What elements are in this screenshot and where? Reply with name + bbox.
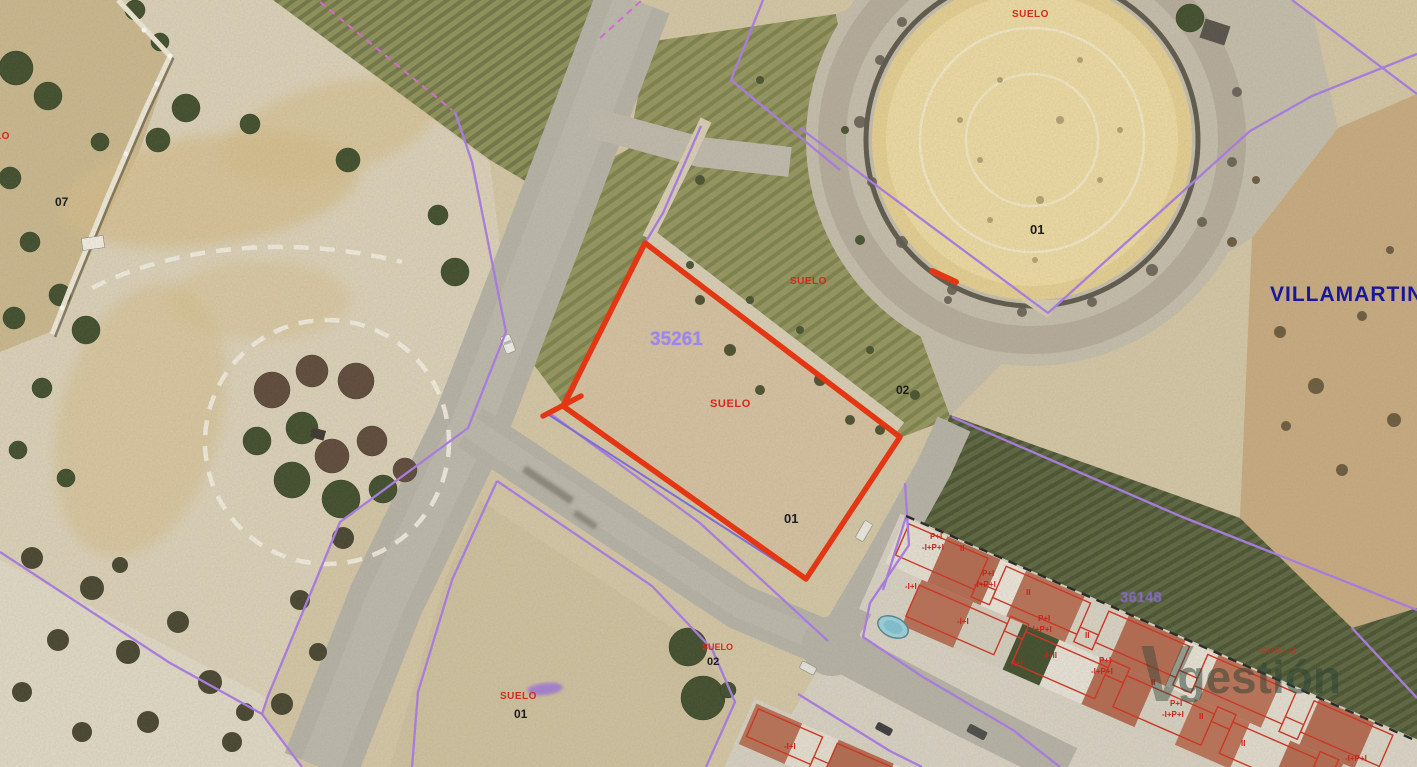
map-canvas[interactable]: SUELO 07 SUELO 01 SUELO 35261 SUELO 02 0… [0, 0, 1417, 767]
floors-label: II [1026, 589, 1030, 597]
subparcel-number: 02 [896, 384, 909, 396]
subparcel-number: 02 [707, 657, 719, 668]
floors-label: -I+II [1043, 652, 1057, 660]
selected-parcel-ref: 35261 [650, 330, 703, 349]
floors-label: -I+P+I [974, 581, 996, 589]
floors-label: II [960, 545, 964, 553]
land-use-label: SUELO [500, 692, 537, 702]
floors-label: -I+P+I [1030, 626, 1052, 634]
floors-label: -I+P+I [922, 544, 944, 552]
land-use-label: SUELO [710, 399, 751, 410]
nearby-parcel-ref: 36148 [1120, 590, 1162, 605]
floors-label: P+I [930, 533, 942, 541]
subparcel-number: 07 [55, 196, 68, 208]
floors-label: -I+P+I [1162, 711, 1184, 719]
floors-label: II [1151, 679, 1155, 687]
subparcel-number: 01 [514, 708, 527, 720]
land-use-label: SUELO [1260, 647, 1297, 657]
floors-label: -I+P+I [1345, 755, 1367, 763]
land-use-label: SUELO [0, 132, 10, 142]
land-use-label: SUELO [790, 277, 827, 287]
floors-label: -I+I [1011, 660, 1023, 668]
floors-label: P+I [1170, 700, 1182, 708]
subparcel-number: 01 [784, 512, 798, 525]
floors-label: II [1085, 632, 1089, 640]
floors-label: -I+I [905, 583, 917, 591]
floors-label: -I+I [784, 743, 796, 751]
floors-label: II [1241, 740, 1245, 748]
town-name-label: VILLAMARTIN [1270, 284, 1417, 305]
subparcel-number: 01 [1030, 223, 1044, 236]
land-use-label: SUELO [702, 643, 733, 652]
land-use-label: SUELO [1012, 10, 1049, 20]
floors-label: -I+P+I [1091, 668, 1113, 676]
floors-label: P+I [1099, 657, 1111, 665]
floors-label: P+I [982, 570, 994, 578]
floors-label: II [1199, 713, 1203, 721]
floors-label: P+I [1038, 615, 1050, 623]
floors-label: -I+I [957, 618, 969, 626]
